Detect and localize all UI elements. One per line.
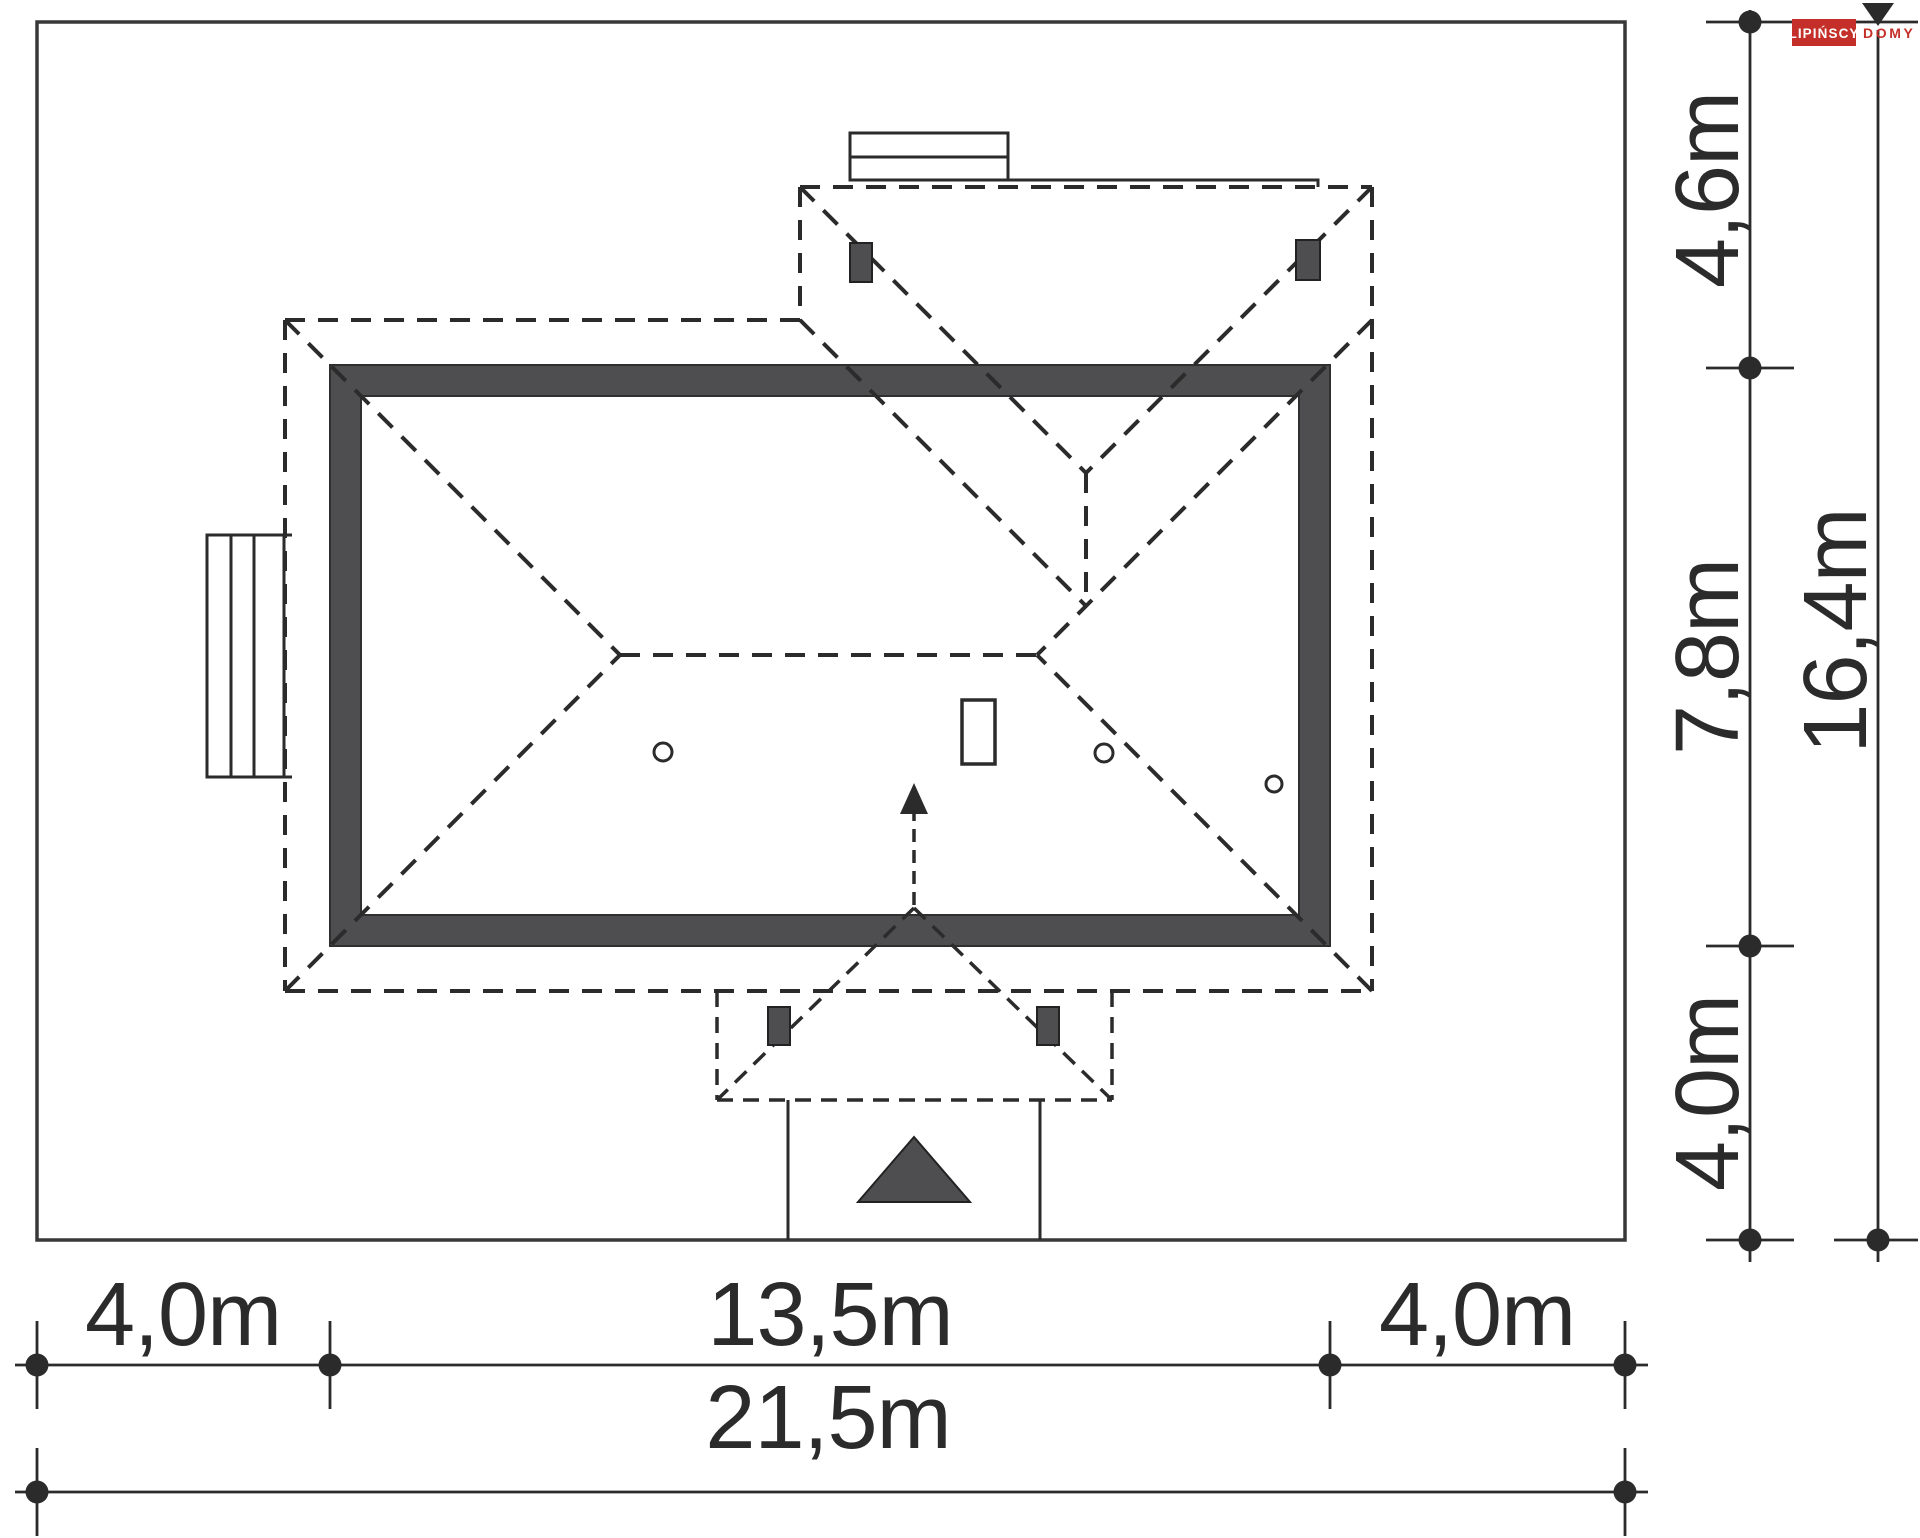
dim-label-bottom-right-4-0m: 4,0m xyxy=(1379,1265,1575,1365)
roof-vent xyxy=(1095,744,1113,762)
roof-eave-outline xyxy=(285,187,1372,991)
entrance-marker-triangle xyxy=(858,1137,970,1202)
dim-dot xyxy=(1739,1229,1762,1252)
dim-label-left-4-0m: 4,0m xyxy=(85,1265,281,1365)
porch-post xyxy=(768,1007,790,1045)
dim-label-13-5m: 13,5m xyxy=(707,1265,952,1365)
dim-label-7-8m: 7,8m xyxy=(1658,559,1758,755)
dim-dot xyxy=(26,1481,49,1504)
dim-dot xyxy=(319,1354,342,1377)
roof-window xyxy=(850,133,1318,187)
chimney-outline xyxy=(962,700,995,764)
dim-dot xyxy=(1614,1481,1637,1504)
dim-label-21-5m: 21,5m xyxy=(705,1368,950,1468)
dimension-right: 4,6m 7,8m 4,0m 16,4m xyxy=(1658,3,1918,1262)
site-plan-drawing: 4,6m 7,8m 4,0m 16,4m 4,0m 13,5m 4,0m 21,… xyxy=(0,0,1920,1538)
dim-dot xyxy=(1614,1354,1637,1377)
dim-dot xyxy=(1867,1229,1890,1252)
valley-line-west xyxy=(800,320,1086,606)
roof-vent xyxy=(654,743,672,761)
chimney xyxy=(1296,240,1320,280)
dim-dot xyxy=(26,1354,49,1377)
dim-dot xyxy=(1739,357,1762,380)
west-steps xyxy=(207,535,292,777)
roof-vent xyxy=(1266,776,1282,792)
plot-boundary xyxy=(37,22,1625,1240)
dim-dot xyxy=(1739,11,1762,34)
dimension-bottom: 4,0m 13,5m 4,0m 21,5m xyxy=(15,1265,1648,1536)
logo-suffix-text: DOMY xyxy=(1863,25,1915,41)
roof-lines xyxy=(285,187,1372,991)
dim-label-4-6m: 4,6m xyxy=(1658,92,1758,288)
dim-label-right-4-0m: 4,0m xyxy=(1658,995,1758,1191)
entrance-arrow-head xyxy=(900,783,928,814)
dim-dot xyxy=(1739,935,1762,958)
wing-hip-nw xyxy=(800,187,1086,473)
dim-dot xyxy=(1319,1354,1342,1377)
steps-outline xyxy=(207,535,284,777)
dim-label-16-4m: 16,4m xyxy=(1786,508,1886,753)
site-plan-page: 4,6m 7,8m 4,0m 16,4m 4,0m 13,5m 4,0m 21,… xyxy=(0,0,1920,1538)
logo-brand-text: LIPIŃSCY xyxy=(1788,26,1859,41)
porch-post xyxy=(1037,1007,1059,1045)
chimney xyxy=(850,243,872,282)
